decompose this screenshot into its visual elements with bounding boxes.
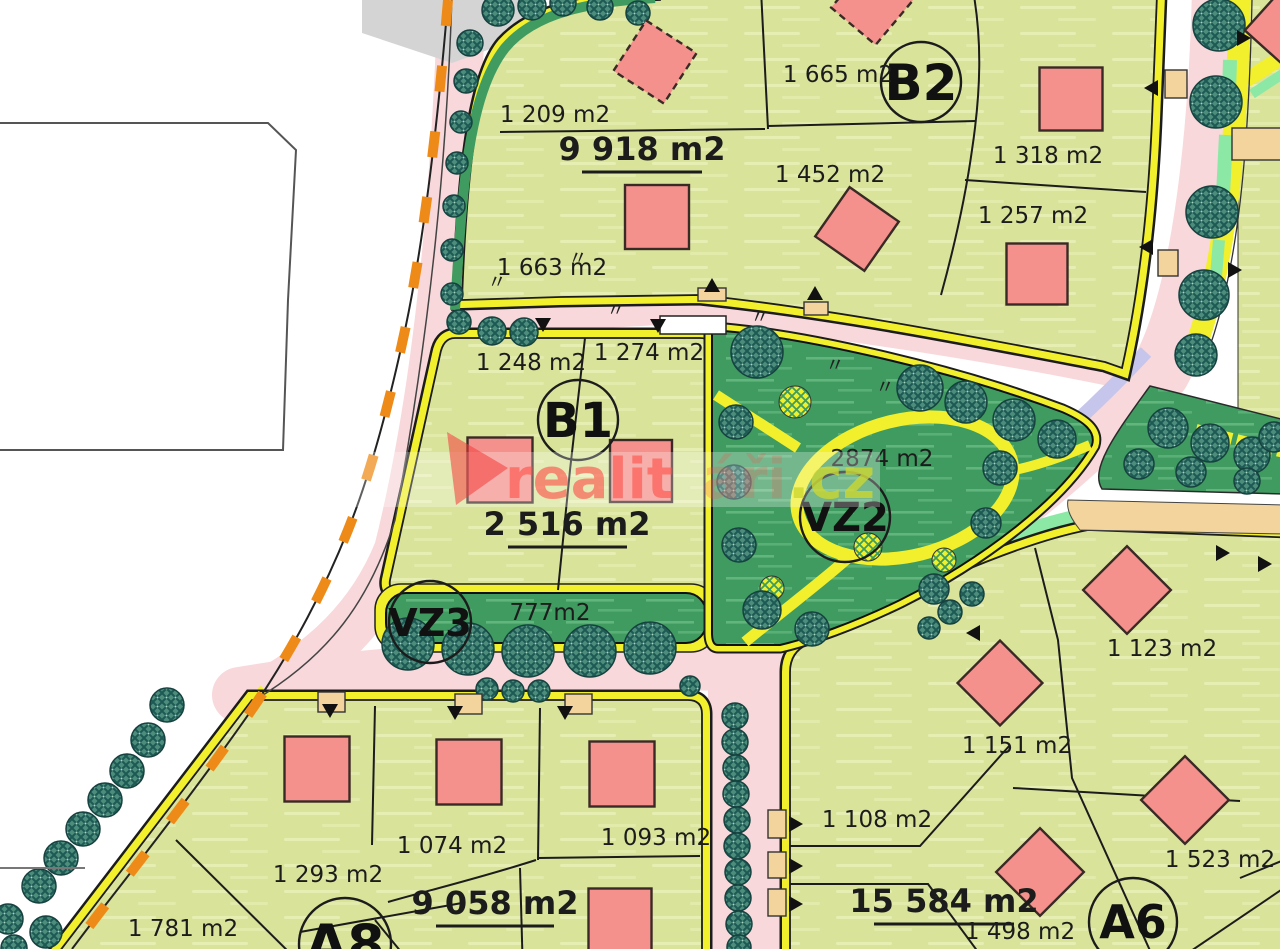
tree-icon — [150, 688, 184, 722]
tree-icon — [30, 916, 62, 948]
tree-icon — [1176, 457, 1206, 487]
house-symbol — [285, 737, 350, 802]
parcel-area-label: 1 318 m2 — [993, 143, 1103, 169]
tree-icon — [44, 841, 78, 875]
tree-icon — [564, 625, 616, 677]
tree-icon — [722, 703, 748, 729]
tree-icon — [528, 680, 550, 702]
ditto-mark: 〃 — [825, 354, 844, 376]
parcel-area-label: 1 123 m2 — [1107, 636, 1217, 662]
parcel-area-label: 1 248 m2 — [476, 350, 586, 376]
parcel-area-label: 1 257 m2 — [978, 203, 1088, 229]
tree-icon — [1191, 424, 1229, 462]
parcel-area-label: 1 665 m2 — [783, 62, 893, 88]
tree-icon — [482, 0, 514, 26]
parcel-area-label: 1 209 m2 — [500, 102, 610, 128]
tree-icon — [719, 405, 753, 439]
tree-icon — [110, 754, 144, 788]
tree-icon — [971, 508, 1001, 538]
footpath-tan — [1068, 500, 1280, 534]
tree-icon — [725, 885, 751, 911]
tree-icon — [725, 859, 751, 885]
tree-icon — [441, 283, 463, 305]
parcel-area-label: 15 584 m2 — [849, 882, 1038, 920]
house-symbol — [1040, 68, 1103, 131]
tree-icon — [624, 622, 676, 674]
tree-icon — [587, 0, 613, 20]
crossing-block — [768, 852, 786, 878]
tree-icon — [724, 833, 750, 859]
tree-icon — [510, 318, 538, 346]
zoning-map-canvas: 〃 〃 〃 〃 〃 〃 B2 B1 VZ2 VZ3 A8 A6 1 209 m2… — [0, 0, 1280, 949]
zone-label-b2: B2 — [885, 54, 958, 112]
tree-icon — [441, 239, 463, 261]
parcel-area-label: 9 058 m2 — [412, 884, 579, 922]
house-symbol — [437, 740, 502, 805]
crossing-block — [1232, 128, 1280, 160]
site-plan-map[interactable]: 〃 〃 〃 〃 〃 〃 B2 B1 VZ2 VZ3 A8 A6 1 209 m2… — [0, 0, 1280, 949]
crossing-block — [768, 889, 786, 916]
house-symbol — [590, 742, 655, 807]
tree-icon — [723, 755, 749, 781]
parcel-area-label: 1 293 m2 — [273, 862, 383, 888]
tree-icon — [723, 781, 749, 807]
tree-icon — [518, 0, 546, 20]
watermark-text: realit — [505, 447, 674, 512]
tree-icon — [502, 625, 554, 677]
tree-icon — [66, 812, 100, 846]
tree-icon — [743, 591, 781, 629]
zone-label-a6: A6 — [1099, 895, 1167, 949]
tree-icon — [945, 381, 987, 423]
tree-icon — [938, 600, 962, 624]
tree-icon — [1148, 408, 1188, 448]
crossing-block — [1165, 70, 1187, 98]
tree-icon — [722, 528, 756, 562]
watermark-text: .cz — [788, 447, 875, 512]
tree-icon — [443, 195, 465, 217]
tree-icon — [454, 69, 478, 93]
tree-icon — [1234, 468, 1260, 494]
parcel-area-label: 1 452 m2 — [775, 162, 885, 188]
house-symbol — [589, 889, 652, 949]
junction-slab — [660, 316, 726, 334]
tree-icon — [447, 310, 471, 334]
parcel-area-label: 777m2 — [510, 600, 591, 626]
tree-icon — [22, 869, 56, 903]
parcel-area-label: 1 274 m2 — [594, 340, 704, 366]
tree-icon — [983, 451, 1017, 485]
tree-icon — [1175, 334, 1217, 376]
ditto-mark: 〃 — [875, 376, 894, 398]
tree-icon — [0, 904, 23, 934]
tree-icon — [1, 935, 27, 949]
crossing-block — [768, 810, 786, 838]
tree-icon — [1038, 420, 1076, 458]
ditto-mark: 〃 — [606, 299, 625, 321]
parcel-area-label: 1 781 m2 — [128, 916, 238, 942]
tree-icon — [478, 317, 506, 345]
watermark-text: áři — [702, 447, 787, 512]
tree-icon — [897, 365, 943, 411]
tree-icon — [993, 399, 1035, 441]
parcel-area-label: 1 151 m2 — [962, 733, 1072, 759]
tree-icon — [1179, 270, 1229, 320]
parcel-area-label: 1 523 m2 — [1165, 847, 1275, 873]
parcel-area-label: 1 108 m2 — [822, 807, 932, 833]
crossing-block — [1158, 250, 1178, 276]
tree-icon — [960, 582, 984, 606]
tree-icon — [795, 612, 829, 646]
tree-icon — [918, 617, 940, 639]
tree-icon — [722, 729, 748, 755]
parcel-area-label: 1 074 m2 — [397, 833, 507, 859]
tree-icon — [450, 111, 472, 133]
tree-icon — [1124, 449, 1154, 479]
tree-icon — [446, 152, 468, 174]
tree-icon — [131, 723, 165, 757]
tree-icon — [1190, 76, 1242, 128]
parcel-area-label: 9 918 m2 — [559, 130, 726, 168]
ditto-mark: 〃 — [750, 306, 769, 328]
tree-icon — [88, 783, 122, 817]
house-symbol — [1007, 244, 1068, 305]
zone-label-a8: A8 — [305, 913, 384, 949]
tree-icon — [502, 680, 524, 702]
tree-icon — [919, 574, 949, 604]
crossing-block — [804, 302, 828, 315]
tree-icon — [1186, 186, 1238, 238]
parcel-area-label: 1 663 m2 — [497, 255, 607, 281]
tree-icon — [457, 30, 483, 56]
parcel-area-label: 1 093 m2 — [601, 825, 711, 851]
tree-icon — [726, 911, 752, 937]
tree-icon — [731, 326, 783, 378]
zone-label-b1: B1 — [543, 393, 613, 449]
zone-label-vz3: VZ3 — [388, 601, 471, 645]
house-symbol — [625, 185, 689, 249]
tree-icon — [680, 676, 700, 696]
tree-icon — [724, 807, 750, 833]
parcel-area-label: 1 498 m2 — [965, 919, 1075, 945]
